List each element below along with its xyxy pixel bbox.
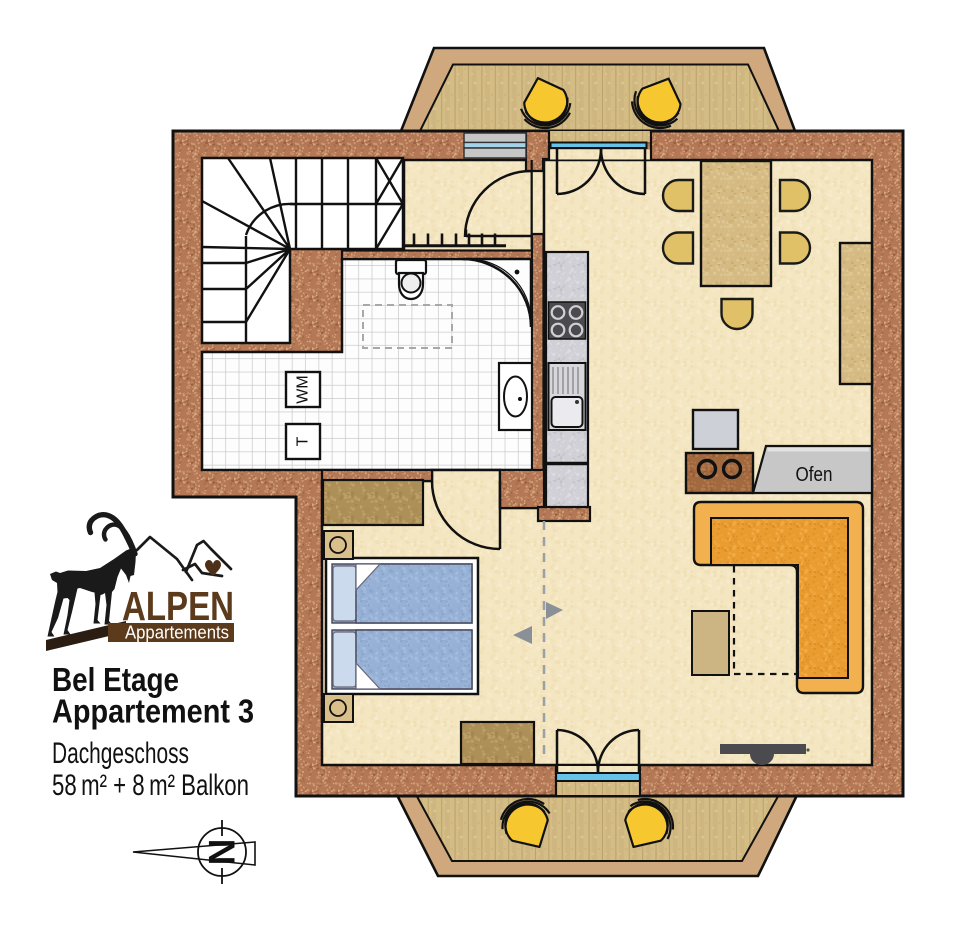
svg-text:Ofen: Ofen: [796, 463, 833, 486]
svg-text:Appartement 3: Appartement 3: [52, 694, 254, 731]
svg-text:WM: WM: [295, 375, 312, 403]
svg-text:Appartements: Appartements: [125, 623, 229, 643]
svg-text:58 m² + 8 m² Balkon: 58 m² + 8 m² Balkon: [52, 769, 249, 802]
svg-text:N: N: [202, 839, 243, 866]
svg-text:T: T: [295, 436, 312, 446]
svg-text:Dachgeschoss: Dachgeschoss: [52, 737, 189, 770]
